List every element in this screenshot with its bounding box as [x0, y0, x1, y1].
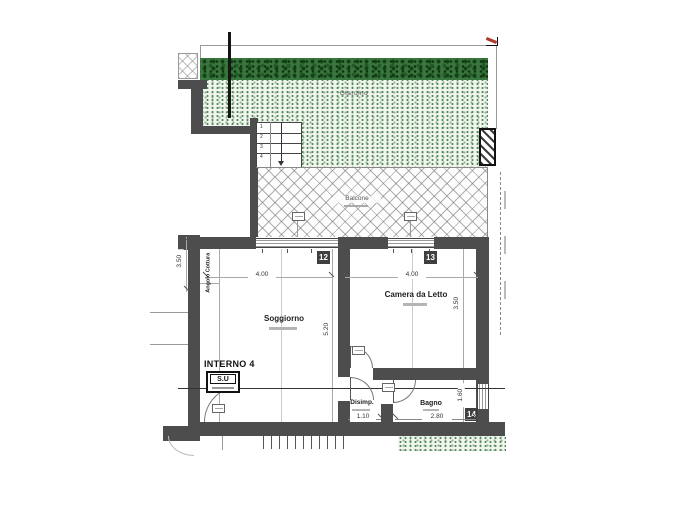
garden-wall-top	[178, 80, 207, 89]
hedge-strip	[200, 58, 488, 80]
door-arc-bagno	[393, 380, 416, 403]
window-12	[256, 238, 338, 248]
window-tick	[311, 249, 312, 253]
dim-disimpegno-width: 1.10	[350, 414, 376, 421]
dim-line-camera-height	[463, 249, 464, 368]
soggiorno-area-subtext	[269, 327, 297, 330]
wall-top-pier	[338, 237, 388, 249]
property-dashed-line	[500, 172, 501, 335]
boundary-line-right	[496, 45, 497, 129]
disimpegno-area-subtext	[352, 409, 370, 411]
door-leaf-camera	[350, 346, 351, 368]
window-tick	[287, 249, 288, 253]
window-badge-12: 12	[317, 251, 330, 264]
door-arc-exterior	[168, 436, 194, 456]
door-gap-soggiorno	[338, 377, 350, 401]
unit-label: INTERNO 4	[204, 360, 264, 369]
soggiorno-label: Soggiorno	[252, 315, 316, 323]
bagno-area-subtext	[423, 409, 439, 411]
disimpegno-label: Disimp.	[346, 400, 378, 407]
wall-bottom	[188, 422, 505, 436]
balcony-area	[258, 168, 488, 237]
window-tag	[292, 212, 305, 221]
camera-label: Camera da Letto	[378, 291, 454, 299]
boundary-note	[504, 236, 506, 254]
door-arc-soggiorno	[350, 377, 374, 400]
tag-stem	[410, 221, 411, 237]
dim-left-height: 3.50	[177, 249, 184, 273]
dim-camera-width: 4.00	[398, 272, 426, 279]
dim-soggiorno-height: 5.20	[324, 317, 331, 341]
dim-bagno-width: 2.80	[422, 414, 452, 421]
wall-camera-bagno	[373, 368, 476, 380]
stair-step-number: 3	[260, 145, 263, 150]
dim-soggiorno-width: 4.00	[248, 272, 276, 279]
dim-camera-height: 3.50	[454, 291, 461, 315]
extension-line	[222, 436, 223, 450]
dim-bagno-height: 1.60	[458, 383, 465, 407]
tag-stem	[297, 221, 298, 237]
window-13	[388, 238, 434, 248]
fence-ticks	[263, 436, 351, 449]
door-tag	[382, 383, 395, 392]
window-tick	[393, 249, 394, 253]
neighbour-balcony-patch	[178, 53, 198, 79]
pillar-hatched	[479, 128, 496, 166]
su-label: S.U	[210, 376, 236, 383]
balcony-label: Balcone	[333, 196, 381, 203]
door-leaf-soggiorno	[350, 377, 351, 400]
garden-mask	[186, 134, 250, 168]
wall-disimp-bagno	[381, 404, 393, 422]
boundary-line-left	[200, 45, 201, 59]
wall-left	[188, 235, 200, 441]
extension-line	[281, 249, 282, 422]
bagno-label: Bagno	[416, 400, 446, 407]
extension-line	[412, 249, 413, 368]
garden-wall-connector	[191, 126, 258, 134]
leader-line	[150, 312, 188, 313]
green-strip-bottom	[398, 436, 506, 451]
door-tag	[352, 346, 365, 355]
floorplan-canvas: Giardino 1 2 3 4 Balcone	[0, 0, 700, 525]
balcony-area-subtext	[344, 205, 368, 207]
su-value-subtext	[212, 387, 234, 389]
stair-column-line	[270, 122, 271, 168]
stair-walkline	[281, 122, 282, 162]
camera-area-subtext	[403, 303, 427, 306]
leader-line	[150, 344, 188, 345]
door-tag	[212, 404, 225, 413]
window-tag	[404, 212, 417, 221]
boundary-note	[504, 191, 506, 209]
window-badge-13: 13	[424, 251, 437, 264]
boundary-line-top	[200, 45, 497, 46]
boundary-note	[504, 281, 506, 299]
stair-arrow-icon	[278, 161, 284, 166]
garden-post	[228, 32, 231, 118]
garden-label: Giardino	[330, 91, 378, 98]
stair-step-number: 1	[260, 125, 263, 130]
angolo-cottura-label: Angolo Cottura	[206, 246, 212, 300]
window-tick	[262, 249, 263, 253]
dim-line-left	[186, 237, 187, 292]
stair-step-number: 2	[260, 135, 263, 140]
stair-step-number: 4	[260, 155, 263, 160]
